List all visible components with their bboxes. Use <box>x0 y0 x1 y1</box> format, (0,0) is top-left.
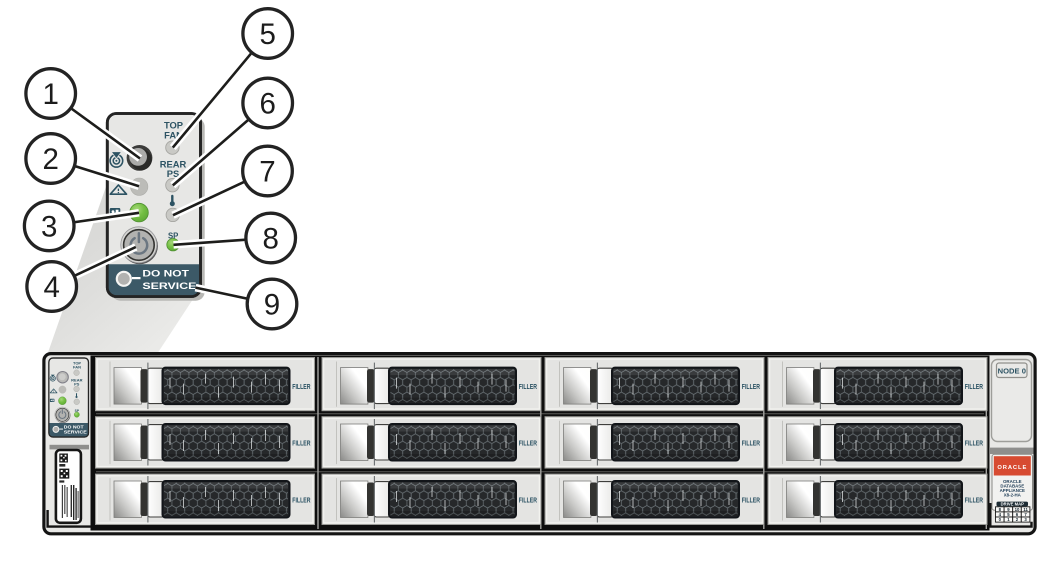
svg-text:4: 4 <box>43 271 59 304</box>
svg-text:7: 7 <box>259 156 275 189</box>
svg-text:8: 8 <box>262 223 278 256</box>
svg-text:1: 1 <box>42 78 58 111</box>
svg-text:3: 3 <box>41 211 57 244</box>
svg-text:6: 6 <box>259 88 275 121</box>
svg-text:ORACLE: ORACLE <box>997 465 1027 471</box>
svg-text:2: 2 <box>42 143 58 176</box>
svg-text:DO NOT: DO NOT <box>142 268 189 279</box>
svg-text:X8-2-HA: X8-2-HA <box>1004 493 1022 498</box>
svg-text:DRIVE MAP: DRIVE MAP <box>1001 502 1024 507</box>
svg-text:5: 5 <box>259 18 275 51</box>
svg-text:SERVICE: SERVICE <box>142 281 197 292</box>
svg-text:NODE 0: NODE 0 <box>998 366 1026 375</box>
svg-text:9: 9 <box>264 289 280 322</box>
